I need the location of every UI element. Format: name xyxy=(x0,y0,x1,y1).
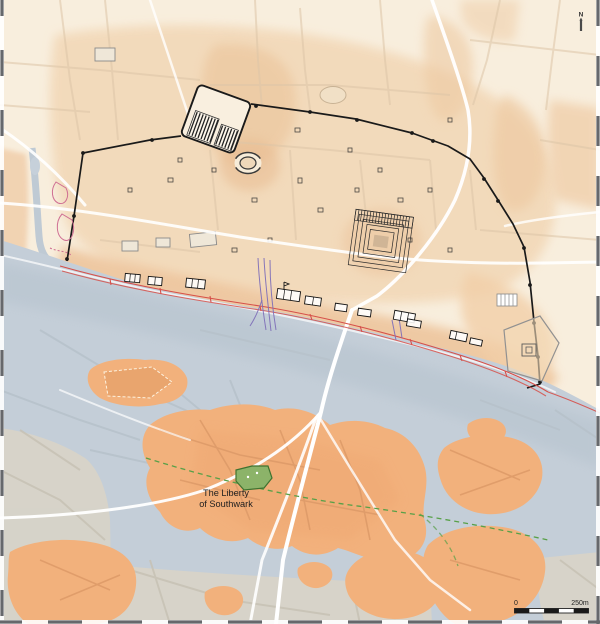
liberty-label: The Liberty of Southwark xyxy=(199,488,253,509)
liberty-label-line1: The Liberty xyxy=(203,488,249,498)
historic-map-canvas: The Liberty of Southwark N 0 250m xyxy=(0,0,600,624)
amphitheatre xyxy=(235,153,262,174)
liberty-label-line2: of Southwark xyxy=(199,499,253,509)
scale-start-label: 0 xyxy=(514,600,518,607)
ring-feature xyxy=(320,87,346,104)
scale-end-label: 250m xyxy=(571,600,589,607)
north-arrow-label: N xyxy=(579,12,584,19)
